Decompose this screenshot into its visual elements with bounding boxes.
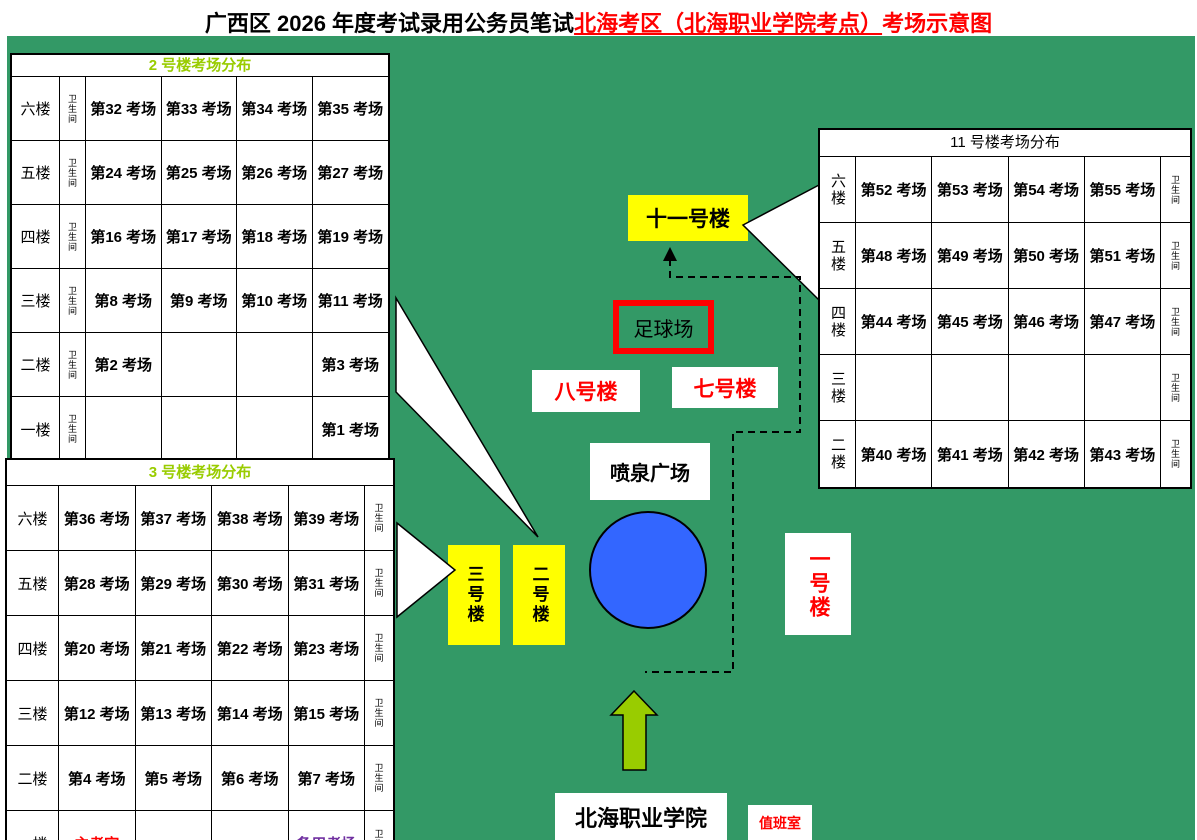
building-2-table-body: 六楼卫生间第32 考场第33 考场第34 考场第35 考场五楼卫生间第24 考场…	[12, 77, 388, 461]
exam-room-cell: 第15 考场	[289, 681, 366, 745]
exam-room-cell: 第36 考场	[59, 486, 136, 550]
floor-cell: 二楼	[12, 333, 60, 396]
table-row: 四楼第44 考场第45 考场第46 考场第47 考场卫生间	[820, 289, 1190, 355]
exam-room-cell: 第33 考场	[162, 77, 238, 140]
table-row: 五楼卫生间第24 考场第25 考场第26 考场第27 考场	[12, 141, 388, 205]
floor-cell: 三楼	[7, 681, 59, 745]
wc-cell: 卫生间	[1161, 223, 1190, 288]
building-2-room-table: 2 号楼考场分布 六楼卫生间第32 考场第33 考场第34 考场第35 考场五楼…	[10, 53, 390, 463]
building-3-table-title: 3 号楼考场分布	[7, 460, 393, 486]
exam-room-cell: 第10 考场	[237, 269, 313, 332]
title-suffix: 考场示意图	[882, 11, 992, 36]
exam-room-cell: 第21 考场	[136, 616, 213, 680]
exam-room-cell	[1009, 355, 1085, 420]
table-row: 四楼卫生间第16 考场第17 考场第18 考场第19 考场	[12, 205, 388, 269]
exam-room-cell	[856, 355, 932, 420]
exam-room-cell: 第1 考场	[313, 397, 389, 461]
wc-cell: 卫生间	[365, 681, 393, 745]
exam-room-cell: 主考室	[59, 811, 136, 840]
exam-room-cell: 第48 考场	[856, 223, 932, 288]
exam-room-cell: 第16 考场	[86, 205, 162, 268]
wc-cell: 卫生间	[1161, 421, 1190, 487]
exam-room-cell: 第34 考场	[237, 77, 313, 140]
callout-wedge-building3	[397, 523, 455, 617]
exam-room-cell: 第50 考场	[1009, 223, 1085, 288]
exam-room-cell	[237, 397, 313, 461]
floor-cell: 四楼	[12, 205, 60, 268]
building-3-room-table: 3 号楼考场分布 六楼第36 考场第37 考场第38 考场第39 考场卫生间五楼…	[5, 458, 395, 840]
callout-wedge-building11	[743, 185, 819, 300]
wc-cell: 卫生间	[365, 616, 393, 680]
building-11-table-body: 六楼第52 考场第53 考场第54 考场第55 考场卫生间五楼第48 考场第49…	[820, 157, 1190, 487]
wc-cell: 卫生间	[1161, 355, 1190, 420]
table-row: 五楼第28 考场第29 考场第30 考场第31 考场卫生间	[7, 551, 393, 616]
exam-room-cell: 第3 考场	[313, 333, 389, 396]
floor-cell: 一楼	[7, 811, 59, 840]
exam-room-cell: 第13 考场	[136, 681, 213, 745]
table-row: 三楼卫生间第8 考场第9 考场第10 考场第11 考场	[12, 269, 388, 333]
exam-room-cell: 第41 考场	[932, 421, 1008, 487]
exam-room-cell: 第11 考场	[313, 269, 389, 332]
exam-room-cell: 第27 考场	[313, 141, 389, 204]
exam-room-cell: 第51 考场	[1085, 223, 1161, 288]
exam-room-cell: 第17 考场	[162, 205, 238, 268]
exam-room-cell: 第38 考场	[212, 486, 289, 550]
exam-room-cell: 第43 考场	[1085, 421, 1161, 487]
exam-room-cell: 第35 考场	[313, 77, 389, 140]
callout-wedge-building2	[396, 298, 538, 537]
exam-room-cell: 第7 考场	[289, 746, 366, 810]
table-row: 一楼主考室备用考场卫生间	[7, 811, 393, 840]
floor-cell: 三楼	[12, 269, 60, 332]
exam-room-cell: 备用考场	[289, 811, 366, 840]
exam-room-cell: 第55 考场	[1085, 157, 1161, 222]
exam-room-cell	[162, 397, 238, 461]
building-11-table-title: 11 号楼考场分布	[820, 130, 1190, 157]
exam-room-cell: 第49 考场	[932, 223, 1008, 288]
exam-room-cell: 第39 考场	[289, 486, 366, 550]
wc-cell: 卫生间	[60, 205, 86, 268]
fountain-circle	[590, 512, 706, 628]
page-title: 广西区 2026 年度考试录用公务员笔试北海考区（北海职业学院考点）考场示意图	[0, 6, 1197, 38]
exam-room-cell: 第46 考场	[1009, 289, 1085, 354]
table-row: 一楼卫生间第1 考场	[12, 397, 388, 461]
exam-room-cell	[237, 333, 313, 396]
exam-room-cell	[932, 355, 1008, 420]
exam-room-cell	[212, 811, 289, 840]
floor-cell: 三楼	[820, 355, 856, 420]
exam-room-cell: 第8 考场	[86, 269, 162, 332]
table-row: 三楼第12 考场第13 考场第14 考场第15 考场卫生间	[7, 681, 393, 746]
exam-room-cell: 第52 考场	[856, 157, 932, 222]
exam-room-cell	[136, 811, 213, 840]
exam-room-cell: 第9 考场	[162, 269, 238, 332]
wc-cell: 卫生间	[60, 269, 86, 332]
exam-room-cell: 第14 考场	[212, 681, 289, 745]
exam-room-cell: 第29 考场	[136, 551, 213, 615]
exam-room-cell: 第28 考场	[59, 551, 136, 615]
exam-room-cell: 第22 考场	[212, 616, 289, 680]
wc-cell: 卫生间	[60, 333, 86, 396]
building-2-table-title: 2 号楼考场分布	[12, 55, 388, 77]
floor-cell: 六楼	[7, 486, 59, 550]
floor-cell: 六楼	[820, 157, 856, 222]
exam-room-cell: 第23 考场	[289, 616, 366, 680]
table-row: 六楼第52 考场第53 考场第54 考场第55 考场卫生间	[820, 157, 1190, 223]
exam-room-cell: 第31 考场	[289, 551, 366, 615]
wc-cell: 卫生间	[60, 77, 86, 140]
exam-room-cell: 第18 考场	[237, 205, 313, 268]
exam-room-cell: 第37 考场	[136, 486, 213, 550]
table-row: 二楼第40 考场第41 考场第42 考场第43 考场卫生间	[820, 421, 1190, 487]
floor-cell: 五楼	[820, 223, 856, 288]
table-row: 六楼第36 考场第37 考场第38 考场第39 考场卫生间	[7, 486, 393, 551]
wc-cell: 卫生间	[1161, 289, 1190, 354]
floor-cell: 四楼	[7, 616, 59, 680]
exam-room-cell: 第2 考场	[86, 333, 162, 396]
exam-room-cell: 第32 考场	[86, 77, 162, 140]
floor-cell: 二楼	[7, 746, 59, 810]
floor-cell: 一楼	[12, 397, 60, 461]
exam-room-cell: 第30 考场	[212, 551, 289, 615]
exam-room-cell: 第6 考场	[212, 746, 289, 810]
floor-cell: 四楼	[820, 289, 856, 354]
duty-room-label: 值班室	[748, 805, 812, 840]
exam-room-cell: 第5 考场	[136, 746, 213, 810]
wc-cell: 卫生间	[365, 486, 393, 550]
exam-room-cell: 第54 考场	[1009, 157, 1085, 222]
title-exam-name: 广西区 2026 年度考试录用公务员笔试	[205, 11, 574, 36]
wc-cell: 卫生间	[60, 397, 86, 461]
exam-room-cell: 第42 考场	[1009, 421, 1085, 487]
exam-room-cell	[1085, 355, 1161, 420]
wc-cell: 卫生间	[60, 141, 86, 204]
floor-cell: 二楼	[820, 421, 856, 487]
exam-room-cell: 第53 考场	[932, 157, 1008, 222]
table-row: 二楼卫生间第2 考场第3 考场	[12, 333, 388, 397]
exam-room-cell: 第40 考场	[856, 421, 932, 487]
floor-cell: 六楼	[12, 77, 60, 140]
exam-room-cell: 第24 考场	[86, 141, 162, 204]
table-row: 三楼卫生间	[820, 355, 1190, 421]
building-3-table-body: 六楼第36 考场第37 考场第38 考场第39 考场卫生间五楼第28 考场第29…	[7, 486, 393, 840]
exam-room-cell: 第45 考场	[932, 289, 1008, 354]
table-row: 六楼卫生间第32 考场第33 考场第34 考场第35 考场	[12, 77, 388, 141]
table-row: 五楼第48 考场第49 考场第50 考场第51 考场卫生间	[820, 223, 1190, 289]
wc-cell: 卫生间	[365, 746, 393, 810]
title-site-name: 北海考区（北海职业学院考点）	[574, 11, 882, 36]
wc-cell: 卫生间	[1161, 157, 1190, 222]
building-11-room-table: 11 号楼考场分布 六楼第52 考场第53 考场第54 考场第55 考场卫生间五…	[818, 128, 1192, 489]
floor-cell: 五楼	[7, 551, 59, 615]
floor-cell: 五楼	[12, 141, 60, 204]
exam-room-cell: 第12 考场	[59, 681, 136, 745]
exam-room-cell: 第47 考场	[1085, 289, 1161, 354]
exam-room-cell: 第26 考场	[237, 141, 313, 204]
exam-room-cell	[86, 397, 162, 461]
exam-room-cell	[162, 333, 238, 396]
entrance-arrow-icon	[611, 691, 657, 770]
table-row: 四楼第20 考场第21 考场第22 考场第23 考场卫生间	[7, 616, 393, 681]
exam-room-cell: 第44 考场	[856, 289, 932, 354]
wc-cell: 卫生间	[365, 551, 393, 615]
exam-room-cell: 第19 考场	[313, 205, 389, 268]
exam-room-cell: 第20 考场	[59, 616, 136, 680]
table-row: 二楼第4 考场第5 考场第6 考场第7 考场卫生间	[7, 746, 393, 811]
exam-room-cell: 第4 考场	[59, 746, 136, 810]
route-arrowhead-icon	[663, 247, 677, 261]
exam-room-cell: 第25 考场	[162, 141, 238, 204]
wc-cell: 卫生间	[365, 811, 393, 840]
exam-site-map-page: 广西区 2026 年度考试录用公务员笔试北海考区（北海职业学院考点）考场示意图 …	[0, 0, 1197, 840]
